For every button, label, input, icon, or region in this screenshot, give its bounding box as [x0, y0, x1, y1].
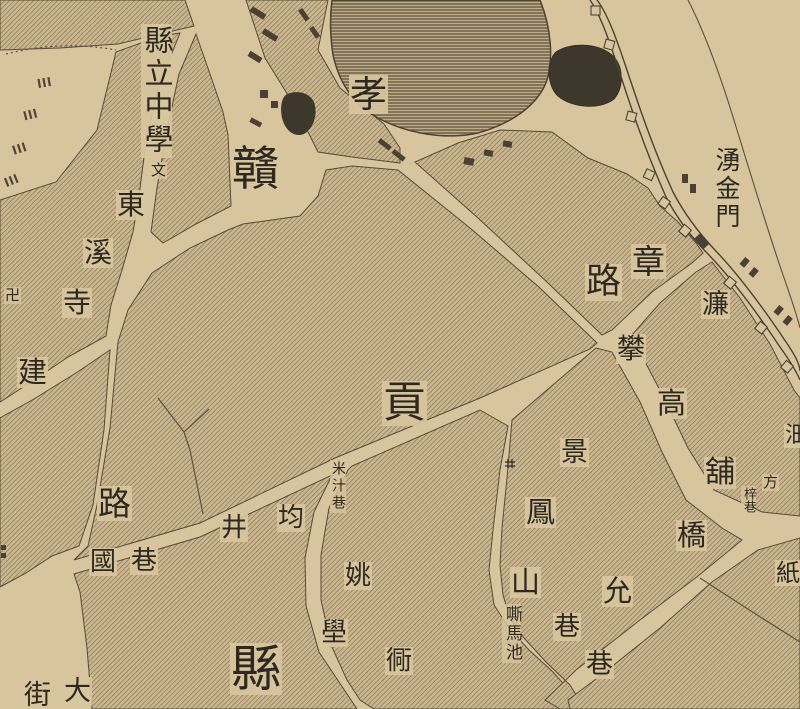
- label-county-middle-school: 縣立中學: [141, 24, 172, 158]
- label-fengshan-char-1: 鳳: [525, 497, 556, 528]
- label-yun: 允: [602, 576, 633, 607]
- label-da: 大: [63, 677, 92, 706]
- label-road-char-w: 路: [97, 486, 132, 521]
- label-road-char-ne: 路: [585, 264, 622, 301]
- label-jian: 建: [17, 357, 48, 388]
- label-xian-large: 縣: [230, 643, 282, 695]
- label-junjing-lane-char-1: 均: [277, 504, 305, 532]
- label-yao: 姚: [344, 562, 372, 590]
- school-symbol: 文: [150, 162, 167, 179]
- label-pangaopu-char-2: 高: [656, 388, 687, 419]
- label-zhang: 章: [631, 244, 666, 279]
- label-fengshan-char-2: 山: [510, 567, 541, 598]
- label-jing-view: 景: [560, 438, 589, 467]
- label-guo: 國: [89, 548, 117, 576]
- label-lane-char-mid: 巷: [553, 613, 581, 641]
- label-dongxi-temple-char-2: 溪: [83, 238, 113, 268]
- label-yongjin-gate: 湧金門: [713, 146, 740, 232]
- label-mizhi-lane-small: 米汁巷: [330, 460, 346, 513]
- label-fangzi-lane-char: 方: [762, 474, 779, 491]
- label-gan-large: 贛: [231, 145, 280, 194]
- map-canvas: [0, 0, 800, 709]
- label-jie-partial: 街: [23, 681, 52, 709]
- dark-pond: [549, 45, 621, 106]
- historical-map: 縣立中學 文 東 溪 寺 卍 贛 孝 湧金門 章 路 貢 濂 攀 高 舖 方 梓…: [0, 0, 800, 709]
- label-dongxi-temple-char-3: 寺: [62, 288, 92, 318]
- label-dongxi-temple-char-1: 東: [116, 190, 146, 220]
- label-bo: 壆: [320, 619, 348, 647]
- label-edge-partial-char: 沺: [784, 424, 800, 448]
- label-lane-char-se: 巷: [585, 650, 614, 679]
- label-pangaopu-char-1: 攀: [616, 334, 646, 364]
- label-pangaopu-char-3: 舖: [704, 457, 736, 489]
- label-junjing-lane-char-3: 巷: [130, 547, 158, 575]
- label-qiao: 橋: [676, 520, 707, 551]
- label-junjing-lane-char-2: 井: [220, 514, 248, 542]
- label-xiao: 孝: [349, 75, 388, 114]
- swastika-temple-icon: 卍: [4, 287, 21, 304]
- label-tong-alley: 衕: [385, 647, 413, 675]
- label-zhi-partial: 紙: [775, 560, 800, 586]
- label-simachi-small: 嘶馬池: [502, 604, 521, 663]
- label-lian: 濂: [701, 290, 730, 319]
- label-gong: 貢: [382, 381, 427, 426]
- label-fangzi-lane-small: 梓巷: [741, 486, 756, 514]
